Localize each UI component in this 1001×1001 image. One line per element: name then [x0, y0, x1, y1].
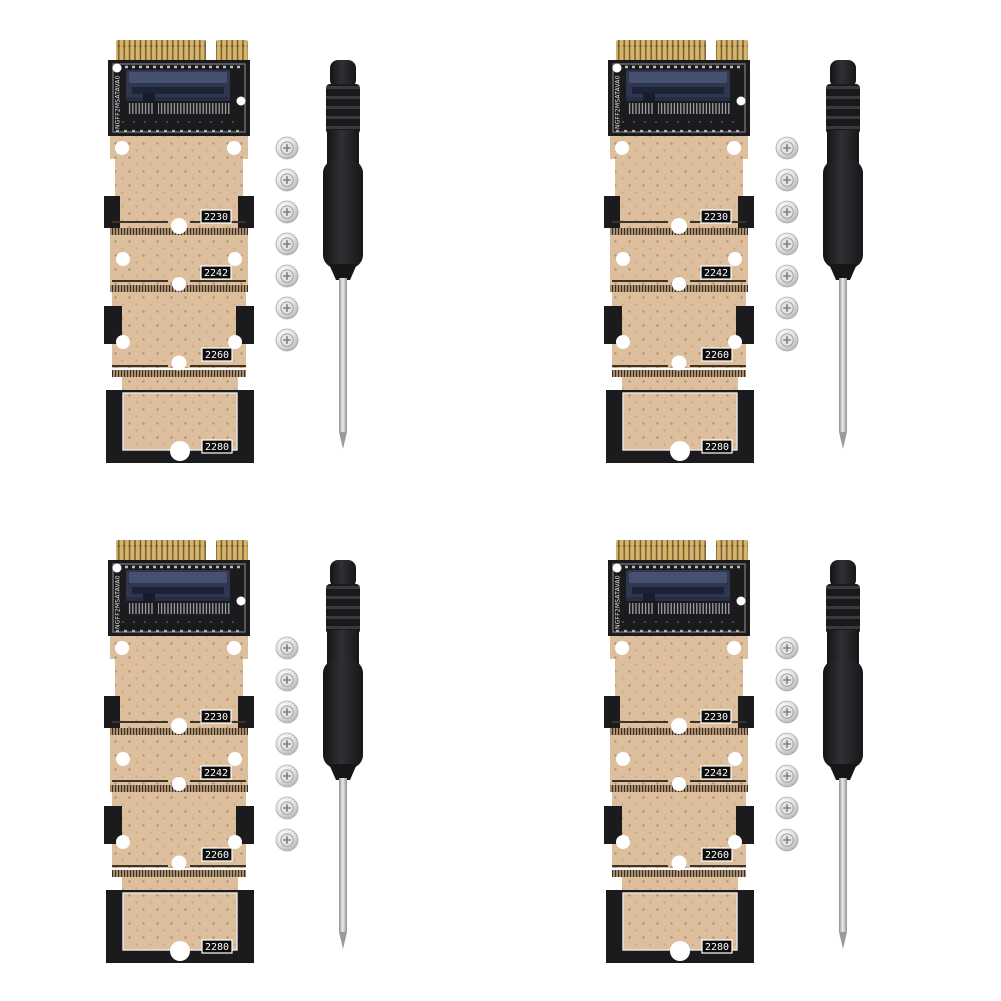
product-photo-canvas: NGFF2MSATAVA0 2230 [0, 0, 1001, 1001]
product-kit-top-right [604, 40, 863, 463]
product-kit-top-left [104, 40, 363, 463]
product-kit-bottom-right [604, 540, 863, 963]
product-kit-bottom-left [104, 540, 363, 963]
